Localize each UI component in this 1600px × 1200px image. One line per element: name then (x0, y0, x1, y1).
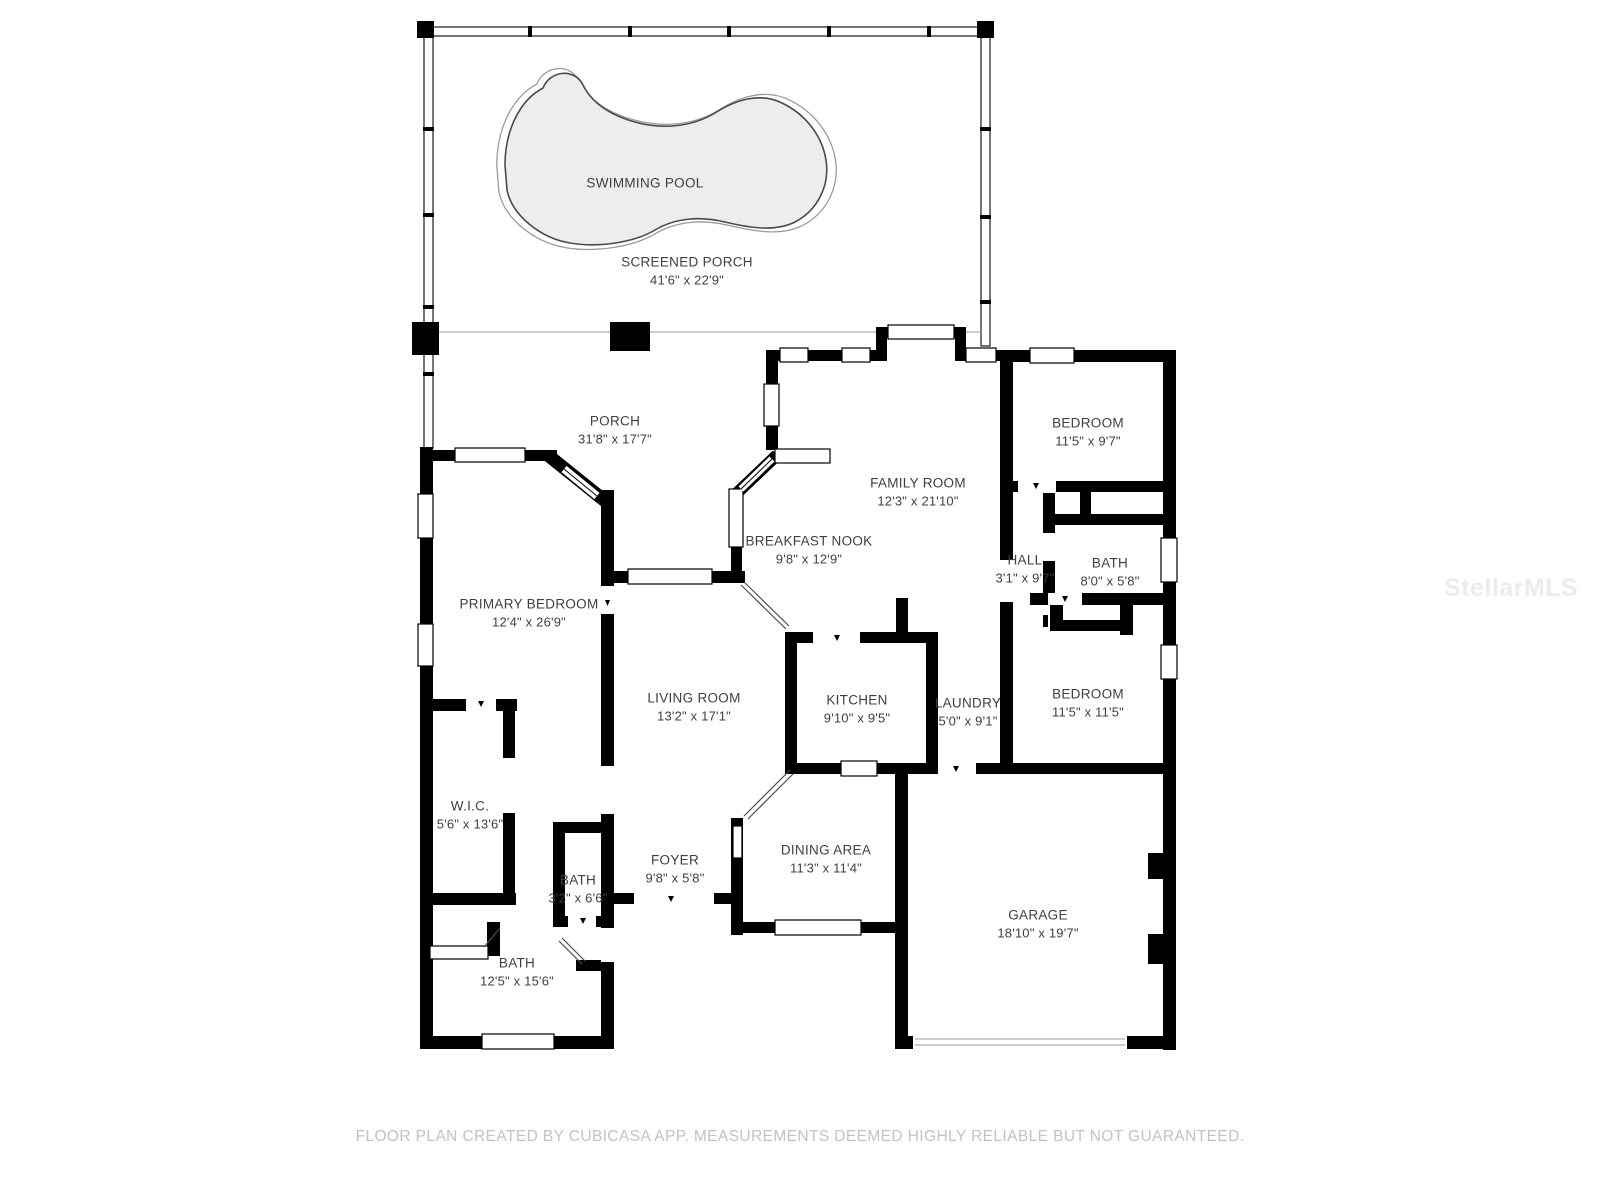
room-label-hall: HALL 3'1" x 9'7" (995, 553, 1054, 586)
room-name: BATH (548, 873, 607, 888)
room-dims: 12'3" x 21'10" (870, 494, 966, 509)
room-label-garage: GARAGE 18'10" x 19'7" (997, 908, 1078, 941)
room-label-kitchen: KITCHEN 9'10" x 9'5" (824, 693, 890, 726)
room-dims: 31'8" x 17'7" (578, 432, 652, 447)
room-dims: 11'5" x 9'7" (1052, 434, 1124, 449)
room-label-dining-area: DINING AREA 11'3" x 11'4" (781, 843, 871, 876)
room-label-wic: W.I.C. 5'6" x 13'6" (437, 799, 503, 832)
room-label-bath-small: BATH 3'2" x 6'6" (548, 873, 607, 906)
room-dims: 11'3" x 11'4" (781, 861, 871, 876)
room-name: LIVING ROOM (647, 691, 740, 706)
room-label-foyer: FOYER 9'8" x 5'8" (645, 853, 704, 886)
room-label-bedroom-right: BEDROOM 11'5" x 11'5" (1052, 687, 1124, 720)
floorplan-page: SWIMMING POOL SCREENED PORCH 41'6" x 22'… (0, 0, 1600, 1200)
room-label-laundry: LAUNDRY 5'0" x 9'1" (935, 696, 1001, 729)
room-name: BATH (480, 956, 554, 971)
room-label-porch: PORCH 31'8" x 17'7" (578, 414, 652, 447)
room-name: KITCHEN (824, 693, 890, 708)
floorplan-drawing (0, 0, 1600, 1200)
room-dims: 3'1" x 9'7" (995, 571, 1054, 586)
footer-disclaimer: FLOOR PLAN CREATED BY CUBICASA APP. MEAS… (0, 1128, 1600, 1146)
room-name: HALL (995, 553, 1054, 568)
swimming-pool-shape (497, 69, 836, 250)
room-dims: 13'2" x 17'1" (647, 709, 740, 724)
room-label-family-room: FAMILY ROOM 12'3" x 21'10" (870, 476, 966, 509)
room-name: GARAGE (997, 908, 1078, 923)
room-dims: 12'4" x 26'9" (459, 615, 598, 630)
room-name: W.I.C. (437, 799, 503, 814)
room-dims: 5'6" x 13'6" (437, 817, 503, 832)
room-name: SCREENED PORCH (621, 255, 753, 270)
room-label-bath-lower: BATH 12'5" x 15'6" (480, 956, 554, 989)
stellar-mls-watermark: StellarMLS (1444, 574, 1578, 603)
room-dims: 12'5" x 15'6" (480, 974, 554, 989)
room-dims: 5'0" x 9'1" (935, 714, 1001, 729)
room-name: BEDROOM (1052, 416, 1124, 431)
room-dims: 8'0" x 5'8" (1080, 574, 1139, 589)
screened-porch-walls (417, 21, 994, 448)
room-dims: 3'2" x 6'6" (548, 891, 607, 906)
room-label-swimming-pool: SWIMMING POOL (586, 176, 703, 191)
room-dims: 9'8" x 5'8" (645, 871, 704, 886)
room-label-screened-porch: SCREENED PORCH 41'6" x 22'9" (621, 255, 753, 288)
room-dims: 41'6" x 22'9" (621, 273, 753, 288)
garage-door (913, 1036, 1127, 1049)
room-label-bedroom-top: BEDROOM 11'5" x 9'7" (1052, 416, 1124, 449)
room-label-living-room: LIVING ROOM 13'2" x 17'1" (647, 691, 740, 724)
room-dims: 18'10" x 19'7" (997, 926, 1078, 941)
room-name: SWIMMING POOL (586, 176, 703, 191)
room-name: FAMILY ROOM (870, 476, 966, 491)
room-dims: 11'5" x 11'5" (1052, 705, 1124, 720)
room-name: FOYER (645, 853, 704, 868)
room-name: LAUNDRY (935, 696, 1001, 711)
room-name: BREAKFAST NOOK (746, 534, 873, 549)
room-label-primary-bedroom: PRIMARY BEDROOM 12'4" x 26'9" (459, 597, 598, 630)
room-name: BEDROOM (1052, 687, 1124, 702)
room-name: PRIMARY BEDROOM (459, 597, 598, 612)
porch-posts (412, 322, 650, 355)
door-swings (484, 583, 793, 964)
room-dims: 9'10" x 9'5" (824, 711, 890, 726)
room-name: PORCH (578, 414, 652, 429)
room-name: DINING AREA (781, 843, 871, 858)
room-name: BATH (1080, 556, 1139, 571)
room-label-breakfast-nook: BREAKFAST NOOK 9'8" x 12'9" (746, 534, 873, 567)
room-dims: 9'8" x 12'9" (746, 552, 873, 567)
room-label-bath-right: BATH 8'0" x 5'8" (1080, 556, 1139, 589)
